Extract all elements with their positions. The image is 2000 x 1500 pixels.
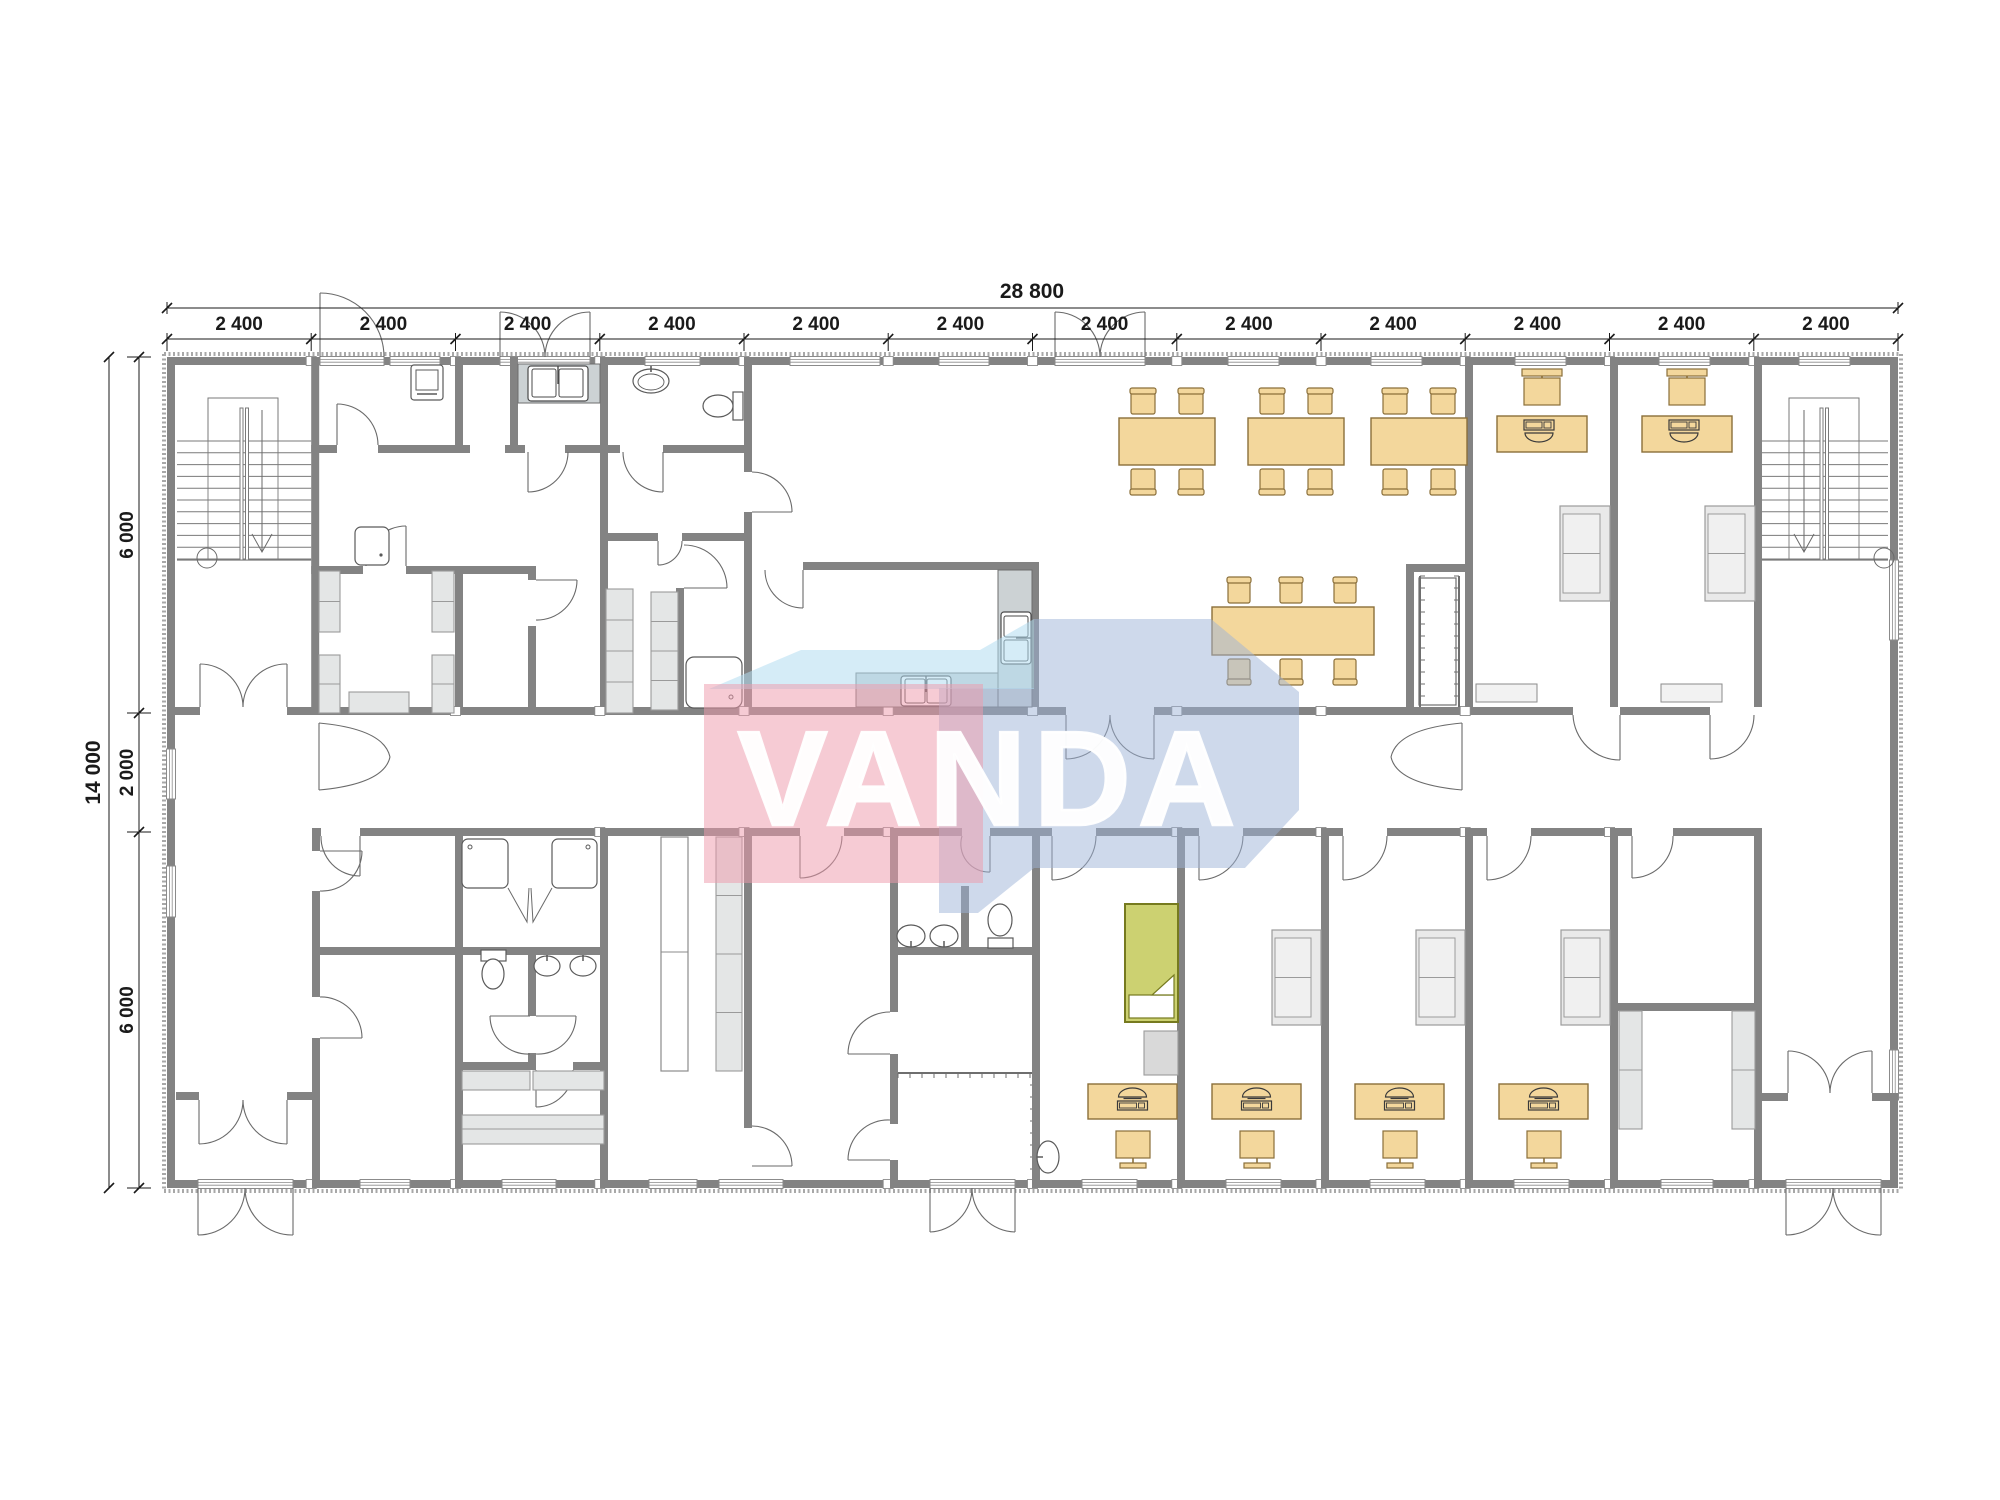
svg-text:2 400: 2 400	[360, 314, 408, 335]
svg-text:2 400: 2 400	[1225, 314, 1273, 335]
svg-text:2 400: 2 400	[648, 314, 696, 335]
svg-text:2 000: 2 000	[117, 749, 138, 797]
svg-text:VANDA: VANDA	[738, 703, 1243, 854]
svg-text:2 400: 2 400	[1369, 314, 1417, 335]
svg-text:6 000: 6 000	[117, 986, 138, 1034]
svg-text:6 000: 6 000	[117, 511, 138, 559]
svg-text:2 400: 2 400	[1081, 314, 1129, 335]
svg-text:28 800: 28 800	[1000, 280, 1064, 303]
svg-text:2 400: 2 400	[1514, 314, 1562, 335]
svg-text:2 400: 2 400	[937, 314, 985, 335]
svg-text:2 400: 2 400	[504, 314, 552, 335]
svg-text:14 000: 14 000	[82, 740, 105, 804]
svg-text:2 400: 2 400	[1802, 314, 1850, 335]
svg-text:2 400: 2 400	[792, 314, 840, 335]
svg-text:2 400: 2 400	[215, 314, 263, 335]
svg-text:2 400: 2 400	[1658, 314, 1706, 335]
